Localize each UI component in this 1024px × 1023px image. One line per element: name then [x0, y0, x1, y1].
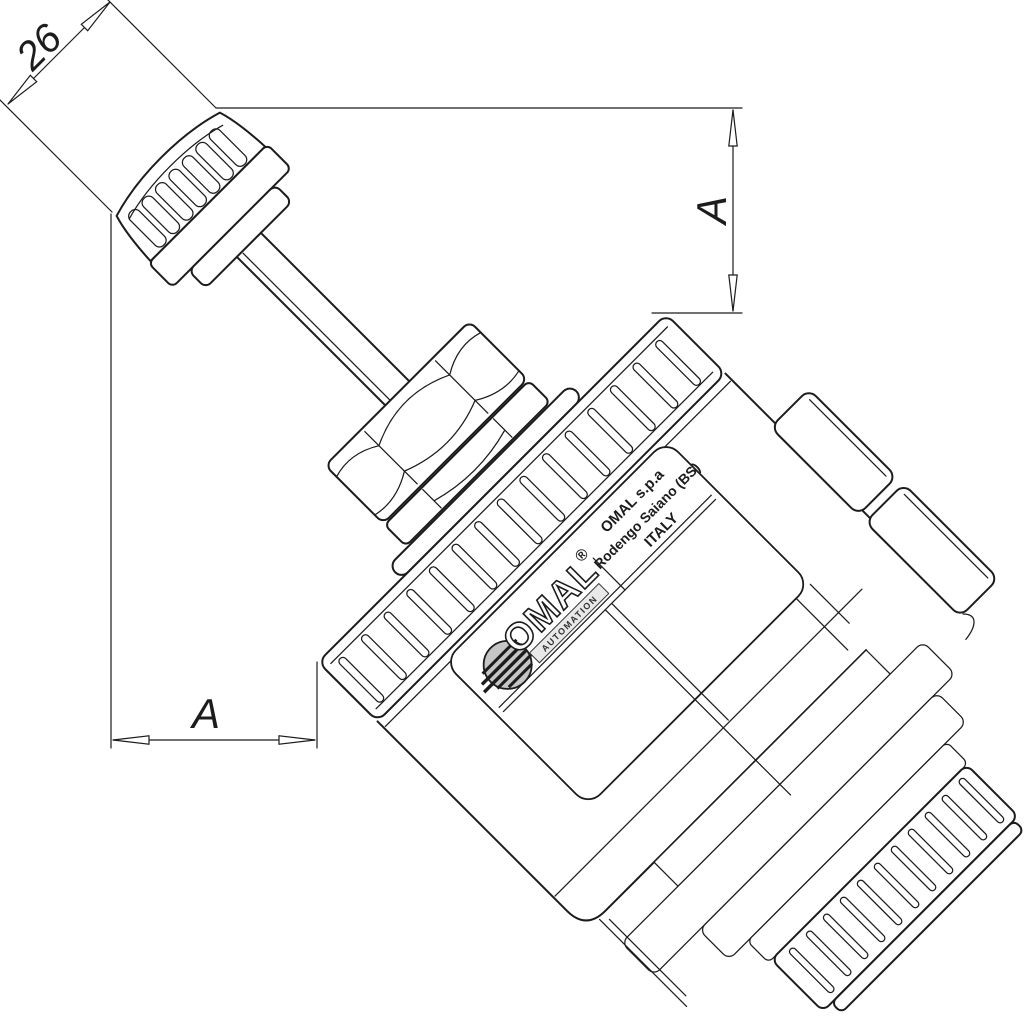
valve-assembly: OMAL ® AUTOMATION OMAL s.p.a Rodengo Sai…	[0, 0, 1024, 1023]
drawing-canvas: OMAL ® AUTOMATION OMAL s.p.a Rodengo Sai…	[0, 0, 1024, 1023]
dim-value-26: 26	[7, 15, 71, 79]
arrowhead	[81, 2, 110, 31]
arrowhead	[8, 75, 37, 104]
technical-drawing: OMAL ® AUTOMATION OMAL s.p.a Rodengo Sai…	[0, 0, 1024, 1023]
valve-stem	[235, 231, 412, 408]
port-boss-upper	[771, 389, 897, 515]
arrowhead	[729, 275, 737, 311]
dim-value-A-bottom: A	[189, 690, 220, 737]
arrowhead	[729, 110, 737, 146]
arrowhead	[279, 736, 315, 744]
dim-value-A-right: A	[688, 196, 735, 227]
arrowhead	[113, 736, 149, 744]
port-boss-lower	[857, 484, 1013, 640]
